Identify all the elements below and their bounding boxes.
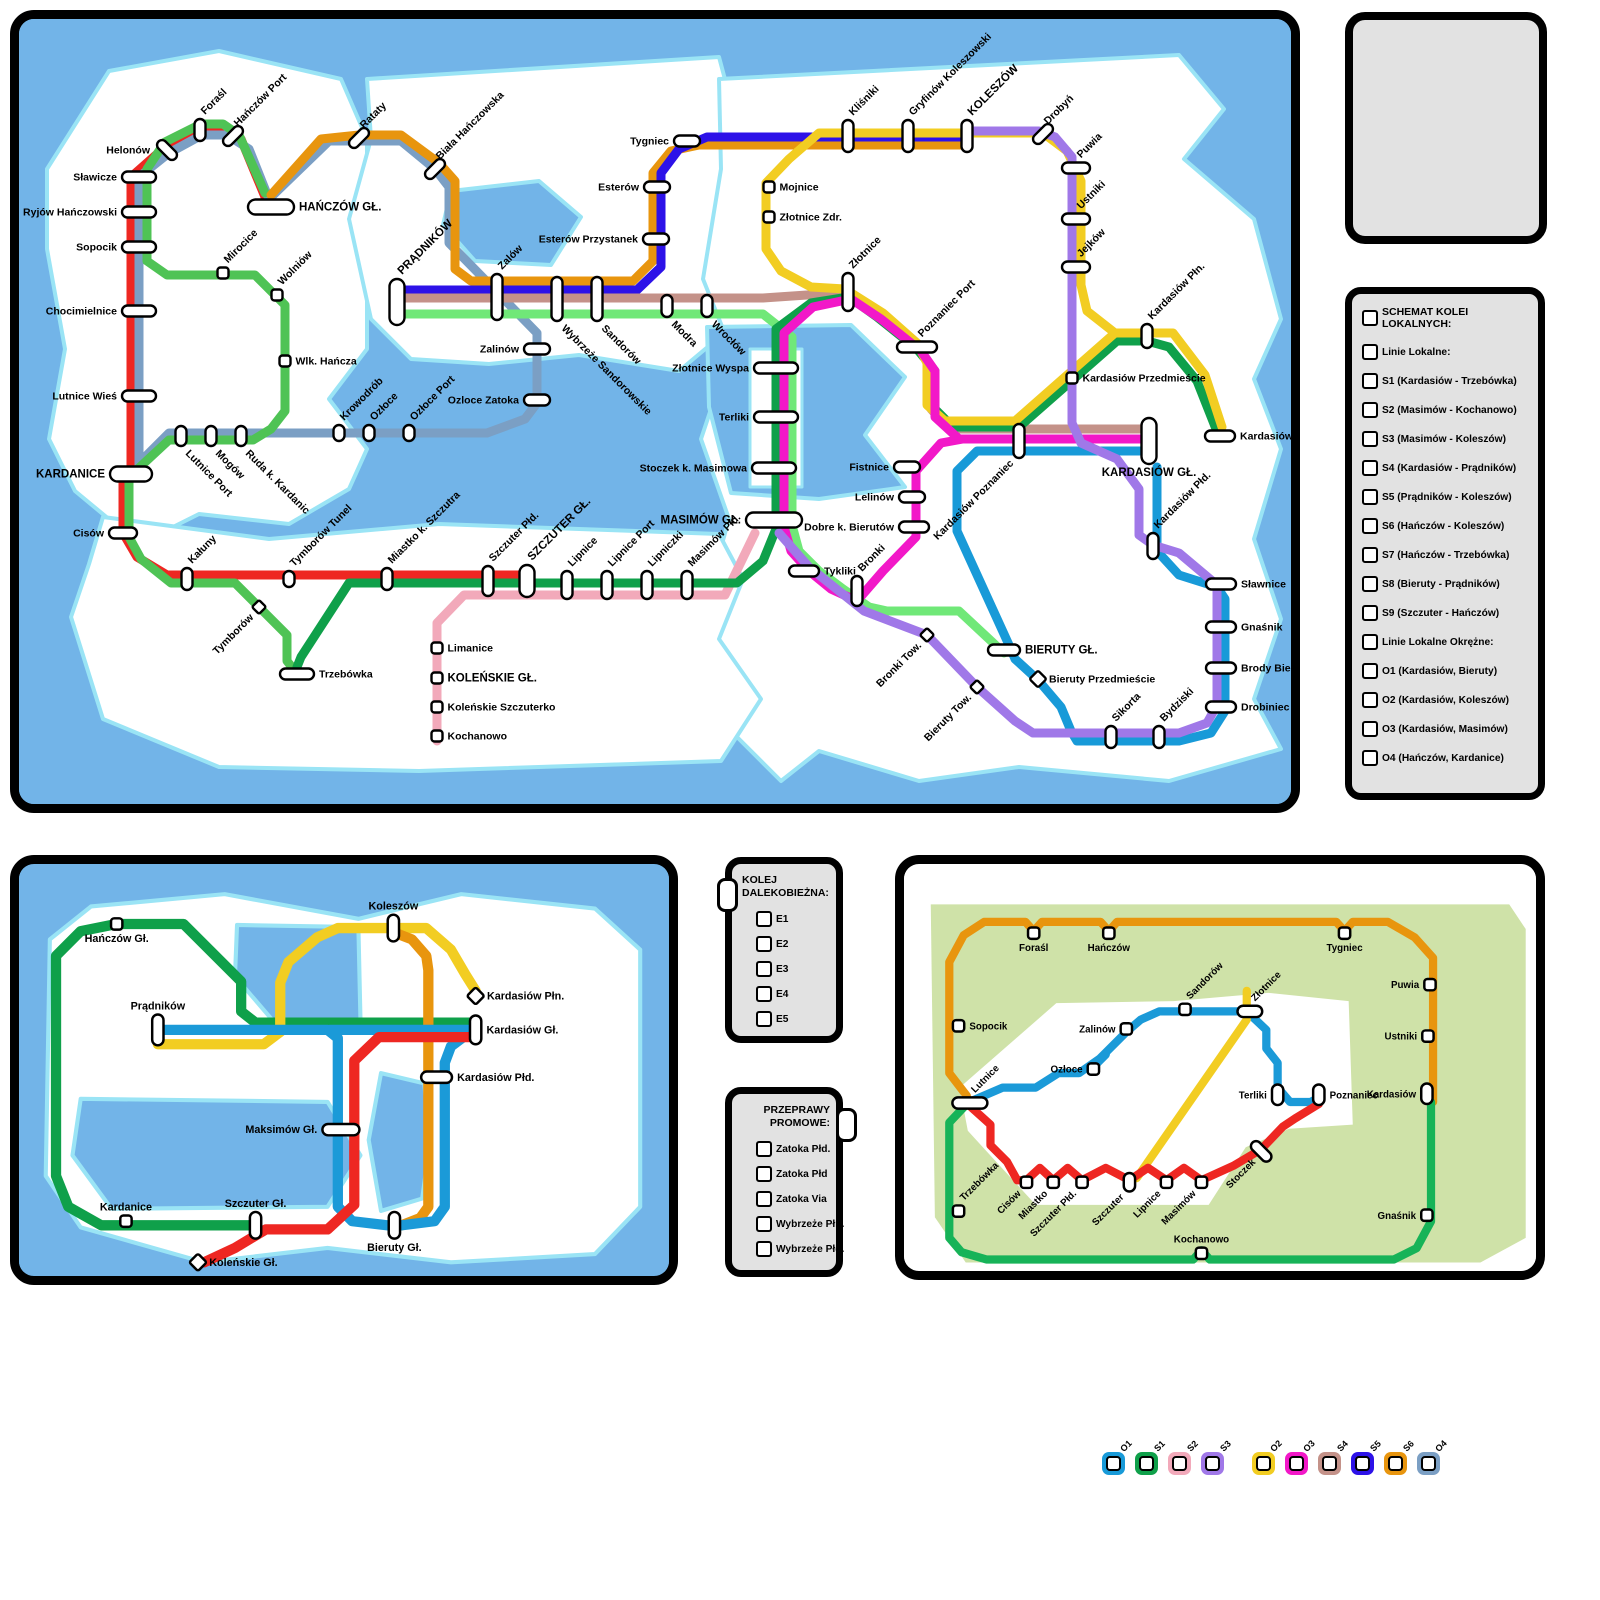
station-marker [389, 1212, 400, 1239]
checkbox-icon[interactable] [756, 936, 772, 952]
station-label: Kardasiów Płd. [457, 1072, 534, 1084]
badge-label: S4 [1335, 1439, 1350, 1454]
line-badge-O4[interactable]: O4 [1417, 1452, 1440, 1475]
legend-title-row: SCHEMAT KOLEI LOKALNYCH: [1362, 306, 1530, 330]
station-marker [702, 295, 713, 317]
checkbox-icon[interactable] [1362, 692, 1378, 708]
station-marker [1142, 324, 1153, 348]
station-marker [1422, 1030, 1433, 1041]
legend-item: S2 (Masimów - Kochanowo) [1362, 402, 1530, 418]
station-label: KARDASIÓW GŁ. [1102, 466, 1197, 479]
station-marker [432, 702, 443, 713]
station-marker [1154, 726, 1165, 748]
station-marker [1196, 1248, 1207, 1259]
legend-item-label: S6 (Hańczów - Koleszów) [1382, 521, 1504, 532]
station-label: HAŃCZÓW GŁ. [299, 201, 381, 214]
station-marker [236, 426, 247, 446]
station-label: Chocimielnice [46, 306, 117, 318]
station-label: Złotnice Wyspa [672, 363, 749, 375]
line-badge-S4[interactable]: S4 [1318, 1452, 1341, 1475]
station-label: Hańczów [1088, 943, 1131, 954]
regional-map: Hańczów Gł.KoleszówKardasiów Płn.Kardasi… [19, 864, 669, 1276]
station-marker [962, 120, 973, 152]
station-label: Esterów [598, 182, 640, 194]
checkbox-icon[interactable] [1362, 431, 1378, 447]
station-label: Lelinów [855, 492, 895, 504]
station-marker [592, 277, 603, 321]
badge-label: O3 [1301, 1438, 1317, 1454]
station-marker [897, 342, 937, 353]
station-marker [280, 356, 291, 367]
legend-item: S6 (Hańczów - Koleszów) [1362, 518, 1530, 534]
station-marker [674, 136, 700, 147]
station-marker [524, 395, 550, 406]
station-marker [899, 492, 925, 503]
legend-item: Wybrzeże Płn. [756, 1216, 830, 1232]
panel-edge-pill [836, 1108, 857, 1142]
badge-label: O1 [1118, 1438, 1134, 1454]
ferry-items: Zatoka Płd.Zatoka PłdZatoka ViaWybrzeże … [742, 1141, 830, 1257]
station-label: Dobre k. Bierutów [804, 522, 895, 534]
station-marker [334, 425, 345, 441]
station-marker [524, 344, 550, 355]
long-distance-panel: KOLEJ DALEKOBIEŻNA: E1E2E3E4E5 [725, 857, 843, 1043]
station-label: Ozłoce [1051, 1065, 1084, 1076]
poster-canvas: HelonówForaślHańczów PortSławiczeRyjów H… [0, 0, 1600, 1600]
station-marker [390, 279, 405, 325]
legend-item: O3 (Kardasiów, Masimów) [1362, 721, 1530, 737]
station-marker [272, 290, 283, 301]
legend-item-label: S9 (Szczuter - Hańczów) [1382, 608, 1499, 619]
station-marker [953, 1205, 964, 1216]
station-label: Hańczów Gł. [85, 933, 149, 945]
station-marker [1148, 533, 1159, 559]
legend-item-label: S7 (Hańczów - Trzebówka) [1382, 550, 1509, 561]
line-badge-O1[interactable]: O1 [1102, 1452, 1125, 1475]
station-label: Terliki [719, 412, 749, 424]
legend-item-label: Linie Lokalne: [1382, 347, 1451, 358]
station-marker [789, 566, 819, 577]
station-marker [1062, 163, 1090, 174]
station-marker [1014, 424, 1025, 458]
station-marker [1237, 1006, 1262, 1017]
badge-label: O2 [1268, 1438, 1284, 1454]
station-marker [1088, 1063, 1099, 1074]
badge-window [1172, 1456, 1187, 1471]
station-marker [195, 119, 206, 141]
station-marker [988, 645, 1020, 656]
station-marker [122, 172, 156, 183]
station-label: Gnaśnik [1241, 622, 1283, 634]
water-body [72, 1099, 360, 1209]
station-marker [1062, 262, 1090, 273]
legend-item: S3 (Masimów - Koleszów) [1362, 431, 1530, 447]
station-label: Kardasiów Płn. [487, 991, 564, 1003]
station-marker [483, 566, 494, 596]
station-label: Ozloce Zatoka [448, 395, 519, 407]
badge-window [1322, 1456, 1337, 1471]
station-marker [182, 568, 193, 590]
legend-item: S1 (Kardasiów - Trzebówka) [1362, 373, 1530, 389]
station-marker [1142, 418, 1157, 464]
checkbox-icon[interactable] [1362, 634, 1378, 650]
station-marker [470, 1015, 481, 1044]
badge-window [1421, 1456, 1436, 1471]
legend-item: O4 (Hańczów, Kardanice) [1362, 750, 1530, 766]
station-label: KARDANICE [36, 469, 105, 481]
badge-label: S2 [1185, 1439, 1200, 1454]
legend-item: E1 [756, 911, 830, 927]
legend-item-label: Wybrzeże Płd. [776, 1244, 844, 1255]
station-label: Sopocik [969, 1021, 1008, 1032]
checkbox-icon[interactable] [1362, 576, 1378, 592]
station-label: Cisów [73, 528, 105, 540]
station-marker [562, 571, 573, 599]
station-marker [111, 918, 122, 929]
checkbox-icon[interactable] [756, 1166, 772, 1182]
legend-item-label: E1 [776, 914, 788, 925]
station-marker [122, 242, 156, 253]
line-badge-S2[interactable]: S2 [1168, 1452, 1191, 1475]
legend-item-label: Linie Lokalne Okrężne: [1382, 637, 1494, 648]
station-marker [752, 463, 796, 474]
empty-info-panel [1345, 12, 1547, 244]
station-marker [1103, 928, 1114, 939]
station-label: Trzebówka [319, 669, 373, 681]
station-label: Stoczek k. Masimowa [640, 463, 748, 475]
station-label: Wlk. Hańcza [296, 356, 357, 368]
station-label: Limanice [448, 643, 494, 655]
station-marker [682, 571, 693, 599]
station-label: Tykliki [824, 566, 856, 578]
station-marker [206, 426, 217, 446]
line-badge-S6[interactable]: S6 [1384, 1452, 1407, 1475]
station-marker [404, 425, 415, 441]
station-label: Drobiniec [1241, 702, 1290, 714]
legend-item: S7 (Hańczów - Trzebówka) [1362, 547, 1530, 563]
station-marker [152, 1014, 163, 1045]
checkbox-icon[interactable] [1362, 460, 1378, 476]
station-marker [109, 528, 137, 539]
line-badge-O2[interactable]: O2 [1252, 1452, 1275, 1475]
station-marker [1124, 1173, 1135, 1192]
station-label: Terliki [1239, 1090, 1267, 1101]
station-marker [176, 426, 187, 446]
station-marker [903, 120, 914, 152]
legend-item-label: Wybrzeże Płn. [776, 1219, 844, 1230]
legend-title: SCHEMAT KOLEI LOKALNYCH: [1382, 306, 1530, 330]
badge-label: O4 [1433, 1438, 1449, 1454]
station-marker [1205, 431, 1235, 442]
station-marker [552, 277, 563, 321]
station-marker [643, 234, 669, 245]
station-label: Kardanice [100, 1201, 152, 1213]
station-label: KOLEŃSKIE GŁ. [448, 672, 537, 685]
legend-item: Zatoka Płd [756, 1166, 830, 1182]
station-label: Zalinów [480, 344, 520, 356]
station-marker [1206, 663, 1236, 674]
station-marker [432, 731, 443, 742]
legend-item: O1 (Kardasiów, Bieruty) [1362, 663, 1530, 679]
badge-label: S1 [1152, 1439, 1167, 1454]
checkbox-icon[interactable] [756, 1191, 772, 1207]
station-marker [250, 1212, 261, 1239]
checkbox-icon[interactable] [756, 961, 772, 977]
station-marker [754, 363, 798, 374]
main-network-map: HelonówForaślHańczów PortSławiczeRyjów H… [19, 19, 1291, 804]
legend-item: Linie Lokalne: [1362, 344, 1530, 360]
badge-window [1106, 1456, 1121, 1471]
station-marker [1206, 622, 1236, 633]
station-marker [492, 274, 503, 320]
legend-item-label: E4 [776, 989, 788, 1000]
station-marker [322, 1124, 359, 1135]
station-marker [894, 462, 920, 473]
regional-map-panel: Hańczów Gł.KoleszówKardasiów Płn.Kardasi… [10, 855, 678, 1285]
station-label: Koleńskie Szczuterko [448, 702, 556, 714]
station-marker [1179, 1004, 1190, 1015]
checkbox-icon[interactable] [756, 1216, 772, 1232]
station-label: Lutnice Wieś [52, 391, 117, 403]
station-marker [120, 1216, 131, 1227]
station-label: Szczuter Gł. [225, 1198, 287, 1210]
station-label: Foraśl [1019, 943, 1049, 954]
legend-item-label: S4 (Kardasiów - Prądników) [1382, 463, 1516, 474]
station-marker [1272, 1084, 1283, 1105]
station-label: Koleńskie Gł. [209, 1257, 277, 1269]
badge-window [1205, 1456, 1220, 1471]
station-marker [1106, 726, 1117, 748]
station-marker [1048, 1177, 1059, 1188]
station-marker [1206, 579, 1236, 590]
station-marker [644, 182, 670, 193]
legend-items: Linie Lokalne:S1 (Kardasiów - Trzebówka)… [1362, 344, 1530, 766]
legend-item: E2 [756, 936, 830, 952]
ferry-panel: PRZEPRAWY PROMOWE: Zatoka Płd.Zatoka Płd… [725, 1087, 843, 1277]
long-distance-title: KOLEJ DALEKOBIEŻNA: [742, 874, 830, 899]
legend-item: S5 (Prądników - Koleszów) [1362, 489, 1530, 505]
legend-item-label: O2 (Kardasiów, Koleszów) [1382, 695, 1509, 706]
ferry-title: PRZEPRAWY PROMOWE: [742, 1104, 830, 1129]
line-badge-O3[interactable]: O3 [1285, 1452, 1308, 1475]
station-marker [642, 571, 653, 599]
checkbox-icon[interactable] [1362, 373, 1378, 389]
legend-item-label: Zatoka Via [776, 1194, 827, 1205]
checkbox-icon[interactable] [756, 911, 772, 927]
station-marker [432, 673, 443, 684]
station-label: Tygniec [1326, 943, 1363, 954]
checkbox-icon[interactable] [1362, 721, 1378, 737]
station-label: Brody Bieruckie [1241, 663, 1291, 675]
legend-item-label: S5 (Prądników - Koleszów) [1382, 492, 1512, 503]
badge-window [1355, 1456, 1370, 1471]
station-label: Sopocik [76, 242, 117, 254]
checkbox-icon[interactable] [1362, 547, 1378, 563]
badge-label: S6 [1401, 1439, 1416, 1454]
station-marker [1076, 1177, 1087, 1188]
line-badge-S5[interactable]: S5 [1351, 1452, 1374, 1475]
legend-item-label: Zatoka Płd [776, 1169, 828, 1180]
station-label: Kardasiów Port [1240, 431, 1291, 443]
checkbox-icon[interactable] [1362, 310, 1378, 326]
badge-window [1289, 1456, 1304, 1471]
station-marker [1062, 214, 1090, 225]
long-distance-items: E1E2E3E4E5 [742, 911, 830, 1027]
station-label: Kochanowo [1174, 1234, 1229, 1245]
legend-item: E5 [756, 1011, 830, 1027]
water-body [369, 1073, 431, 1211]
station-marker [280, 669, 314, 680]
legend-item-label: S1 (Kardasiów - Trzebówka) [1382, 376, 1517, 387]
station-marker [1206, 702, 1236, 713]
legend-item: O2 (Kardasiów, Koleszów) [1362, 692, 1530, 708]
panel-edge-pill [717, 878, 738, 912]
station-label: Helonów [106, 145, 151, 157]
station-marker [1339, 928, 1350, 939]
checkbox-icon[interactable] [756, 1011, 772, 1027]
station-label: Gnaśnik [1378, 1211, 1417, 1222]
checkbox-icon[interactable] [1362, 402, 1378, 418]
station-marker [122, 207, 156, 218]
station-marker [1313, 1084, 1324, 1105]
checkbox-icon[interactable] [1362, 344, 1378, 360]
line-badge-S3[interactable]: S3 [1201, 1452, 1224, 1475]
station-marker [218, 268, 229, 279]
checkbox-icon[interactable] [756, 1241, 772, 1257]
station-label: Kochanowo [448, 731, 508, 743]
legend-item-label: E5 [776, 1014, 788, 1025]
badge-window [1256, 1456, 1271, 1471]
station-label: Ustniki [1385, 1032, 1418, 1043]
local-lines-legend-panel: SCHEMAT KOLEI LOKALNYCH: Linie Lokalne:S… [1345, 287, 1545, 800]
station-marker [364, 425, 375, 441]
station-marker [110, 467, 152, 482]
station-marker [520, 565, 535, 597]
badge-label: S5 [1368, 1439, 1383, 1454]
station-marker [432, 643, 443, 654]
badge-label: S3 [1218, 1439, 1233, 1454]
legend-item-label: E3 [776, 964, 788, 975]
legend-item-label: S3 (Masimów - Koleszów) [1382, 434, 1506, 445]
station-marker [843, 273, 854, 311]
station-label: BIERUTY GŁ. [1025, 645, 1098, 657]
legend-item-label: E2 [776, 939, 788, 950]
station-label: Maksimów Gł. [245, 1124, 317, 1136]
line-badge-row: O1S1S2S3O2O3S4S5S6O4 [1102, 1452, 1450, 1475]
checkbox-icon[interactable] [1362, 605, 1378, 621]
station-label: Prądników [131, 1000, 186, 1012]
station-marker [122, 306, 156, 317]
legend-item: Linie Lokalne Okrężne: [1362, 634, 1530, 650]
station-marker [602, 571, 613, 599]
legend-item-label: S8 (Bieruty - Prądników) [1382, 579, 1500, 590]
station-label: Zalinów [1079, 1025, 1116, 1036]
checkbox-icon[interactable] [1362, 750, 1378, 766]
line-badge-S1[interactable]: S1 [1135, 1452, 1158, 1475]
station-marker [1421, 1210, 1432, 1221]
legend-item: S9 (Szczuter - Hańczów) [1362, 605, 1530, 621]
station-marker [899, 522, 929, 533]
station-marker [662, 295, 673, 317]
station-label: Koleszów [368, 901, 418, 913]
station-label: Bieruty Gł. [367, 1242, 422, 1254]
checkbox-icon[interactable] [1362, 489, 1378, 505]
station-marker [122, 391, 156, 402]
station-marker [1021, 1177, 1032, 1188]
station-marker [843, 120, 854, 152]
station-marker [284, 571, 295, 587]
station-marker [1121, 1023, 1132, 1034]
overview-map: ForaślHańczówTygniecPuwiaUstnikiKardasió… [904, 864, 1536, 1271]
legend-item: Wybrzeże Płd. [756, 1241, 830, 1257]
legend-item: Zatoka Via [756, 1191, 830, 1207]
station-label: Esterów Przystanek [539, 234, 638, 246]
station-marker [1161, 1177, 1172, 1188]
station-marker [1067, 373, 1078, 384]
checkbox-icon[interactable] [756, 986, 772, 1002]
legend-item: Zatoka Płd. [756, 1141, 830, 1157]
badge-window [1139, 1456, 1154, 1471]
checkbox-icon[interactable] [756, 1141, 772, 1157]
main-network-map-panel: HelonówForaślHańczów PortSławiczeRyjów H… [10, 10, 1300, 813]
station-marker [421, 1072, 452, 1083]
station-marker [746, 513, 802, 528]
legend-item: S4 (Kardasiów - Prądników) [1362, 460, 1530, 476]
legend-item: E4 [756, 986, 830, 1002]
station-label: Kardasiów Gł. [486, 1024, 558, 1036]
checkbox-icon[interactable] [1362, 663, 1378, 679]
station-label: Złotnice Zdr. [780, 212, 843, 224]
station-marker [1424, 979, 1435, 990]
legend-item: S8 (Bieruty - Prądników) [1362, 576, 1530, 592]
legend-item-label: Zatoka Płd. [776, 1144, 830, 1155]
station-marker [852, 576, 863, 606]
checkbox-icon[interactable] [1362, 518, 1378, 534]
station-label: Bieruty Przedmieście [1049, 674, 1155, 686]
station-marker [248, 200, 294, 215]
station-marker [754, 412, 798, 423]
station-marker [1196, 1177, 1207, 1188]
station-marker [953, 1020, 964, 1031]
station-label: Puwia [1391, 980, 1420, 991]
station-marker [1421, 1083, 1432, 1104]
station-marker [388, 915, 399, 942]
station-marker [1028, 928, 1039, 939]
station-label: Tygniec [630, 136, 669, 148]
station-label: Fistnice [849, 462, 889, 474]
legend-item-label: O1 (Kardasiów, Bieruty) [1382, 666, 1497, 677]
station-label: Poznaniec [1330, 1090, 1379, 1101]
station-marker [764, 212, 775, 223]
station-marker [382, 568, 393, 590]
overview-map-panel: ForaślHańczówTygniecPuwiaUstnikiKardasió… [895, 855, 1545, 1280]
badge-window [1388, 1456, 1403, 1471]
station-marker [764, 182, 775, 193]
station-label: Sławicze [73, 172, 117, 184]
legend-item: E3 [756, 961, 830, 977]
legend-item-label: O3 (Kardasiów, Masimów) [1382, 724, 1508, 735]
station-label: Mojnice [780, 182, 819, 194]
station-label: Kardasiów Przedmieście [1083, 373, 1206, 385]
station-label: Ryjów Hańczowski [23, 207, 117, 219]
station-marker [952, 1097, 987, 1108]
legend-item-label: S2 (Masimów - Kochanowo) [1382, 405, 1517, 416]
legend-item-label: O4 (Hańczów, Kardanice) [1382, 753, 1504, 764]
station-label: Sławnice [1241, 579, 1286, 591]
